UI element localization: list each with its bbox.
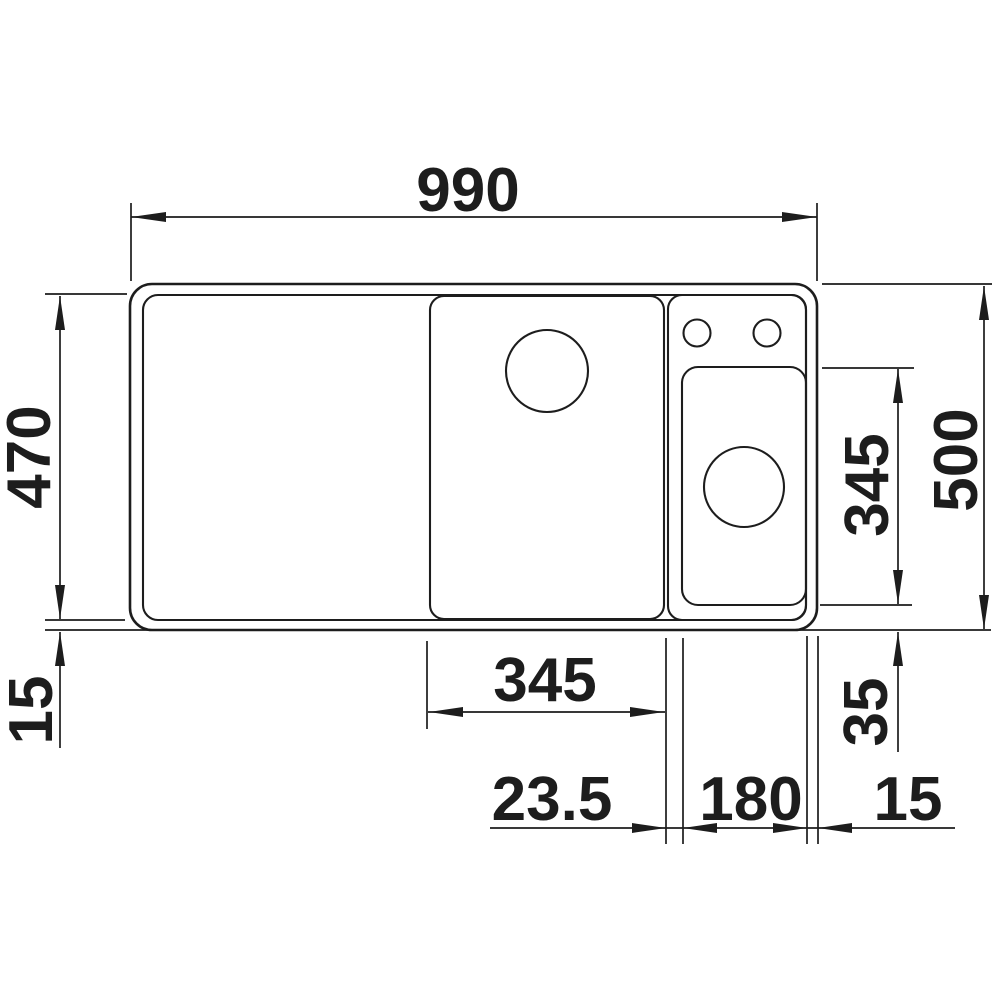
dim-label-rim-left: 15 — [0, 676, 66, 745]
dim-accessory-bowl-height: 345 — [820, 368, 914, 605]
dim-rim-left: 15 — [0, 632, 66, 748]
dim-label-overall-height: 500 — [922, 408, 991, 511]
dim-accessory-offset-arrow — [893, 632, 903, 666]
dim-main-bowl-width: 345 — [427, 641, 665, 729]
dim-accessory-bowl-height-arrow-bottom — [893, 570, 903, 604]
dim-rim-left-arrow — [55, 632, 65, 666]
sink-dimension-drawing-page: 990 470 15 500 345 — [0, 0, 1000, 1000]
dim-rim-right-arrow — [818, 823, 852, 833]
dim-overall-width: 990 — [131, 156, 817, 281]
dim-basin-height-arrow-top — [55, 296, 65, 330]
sink-outline-group — [130, 284, 817, 630]
dim-overall-width-arrow-left — [131, 212, 166, 222]
main-bowl-drain-circle — [506, 330, 588, 412]
tap-hole-right — [754, 320, 781, 347]
dim-label-accessory-bowl-height: 345 — [833, 433, 902, 536]
dim-accessory-offset: 35 — [832, 632, 903, 752]
accessory-bowl-drain-circle — [704, 447, 784, 527]
dim-basin-height: 470 — [0, 294, 127, 620]
dim-overall-height-arrow-top — [979, 286, 989, 320]
sink-outer-rim — [130, 284, 817, 630]
dim-main-bowl-width-arrow-left — [429, 707, 463, 717]
dim-label-main-bowl-width: 345 — [493, 646, 596, 715]
tap-hole-left — [684, 320, 711, 347]
dim-accessory-bowl-height-arrow-top — [893, 369, 903, 403]
dim-label-accessory-bowl-width: 180 — [699, 765, 802, 834]
dim-label-rim-right: 15 — [874, 765, 943, 834]
dim-label-overall-width: 990 — [416, 156, 519, 225]
dim-label-bowl-gap: 23.5 — [492, 765, 613, 834]
accessory-bowl — [682, 367, 806, 605]
dim-basin-height-arrow-bottom — [55, 585, 65, 619]
dim-label-basin-height: 470 — [0, 405, 64, 508]
dim-main-bowl-width-arrow-right — [630, 707, 664, 717]
dim-overall-height-arrow-bottom — [979, 595, 989, 629]
dim-overall-width-arrow-right — [782, 212, 817, 222]
dim-label-accessory-offset: 35 — [832, 678, 901, 747]
main-bowl — [430, 296, 664, 619]
sink-dimension-drawing: 990 470 15 500 345 — [0, 0, 1000, 1000]
dim-bowl-gap-arrow-left — [632, 823, 666, 833]
